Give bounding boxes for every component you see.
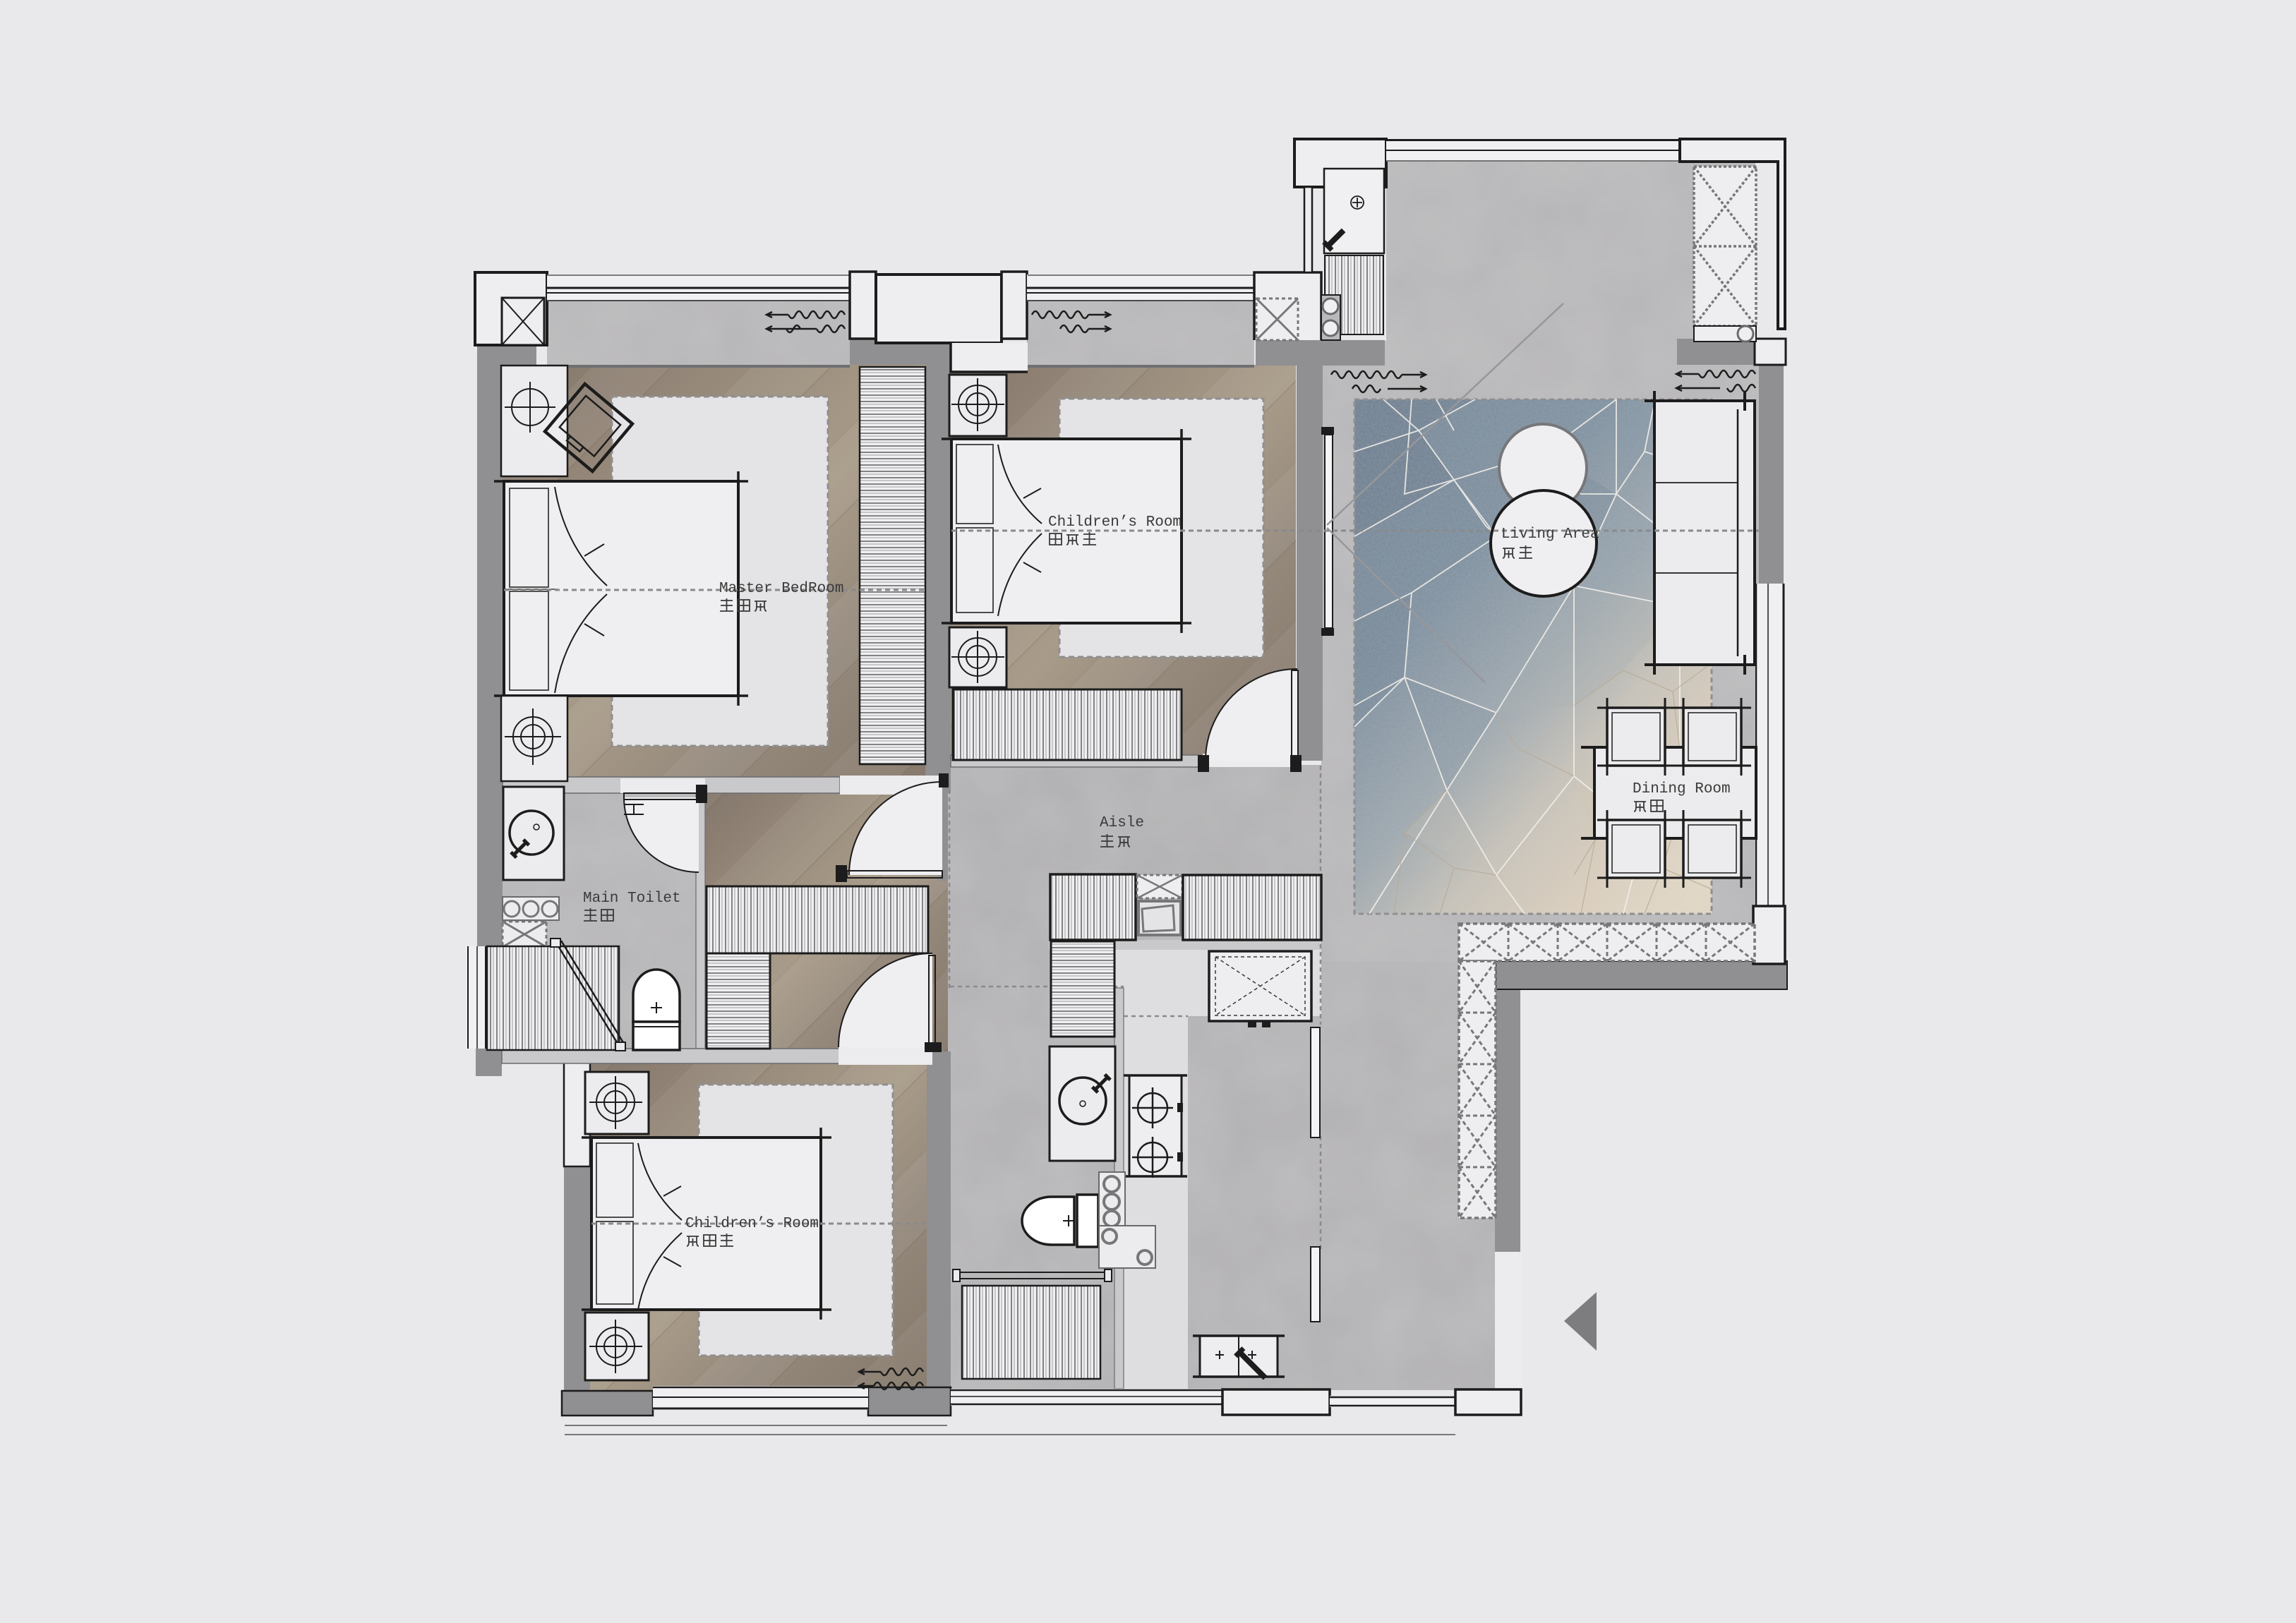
- svg-text:Aisle: Aisle: [1100, 815, 1144, 831]
- svg-text:Children’s Room: Children’s Room: [685, 1216, 819, 1232]
- svg-text:Main Toilet: Main Toilet: [583, 891, 681, 907]
- svg-text:Master BedRoom: Master BedRoom: [719, 581, 843, 597]
- svg-text:Children’s Room: Children’s Room: [1048, 514, 1182, 531]
- svg-text:Dining Room: Dining Room: [1633, 781, 1731, 797]
- svg-text:Living Area: Living Area: [1501, 526, 1599, 543]
